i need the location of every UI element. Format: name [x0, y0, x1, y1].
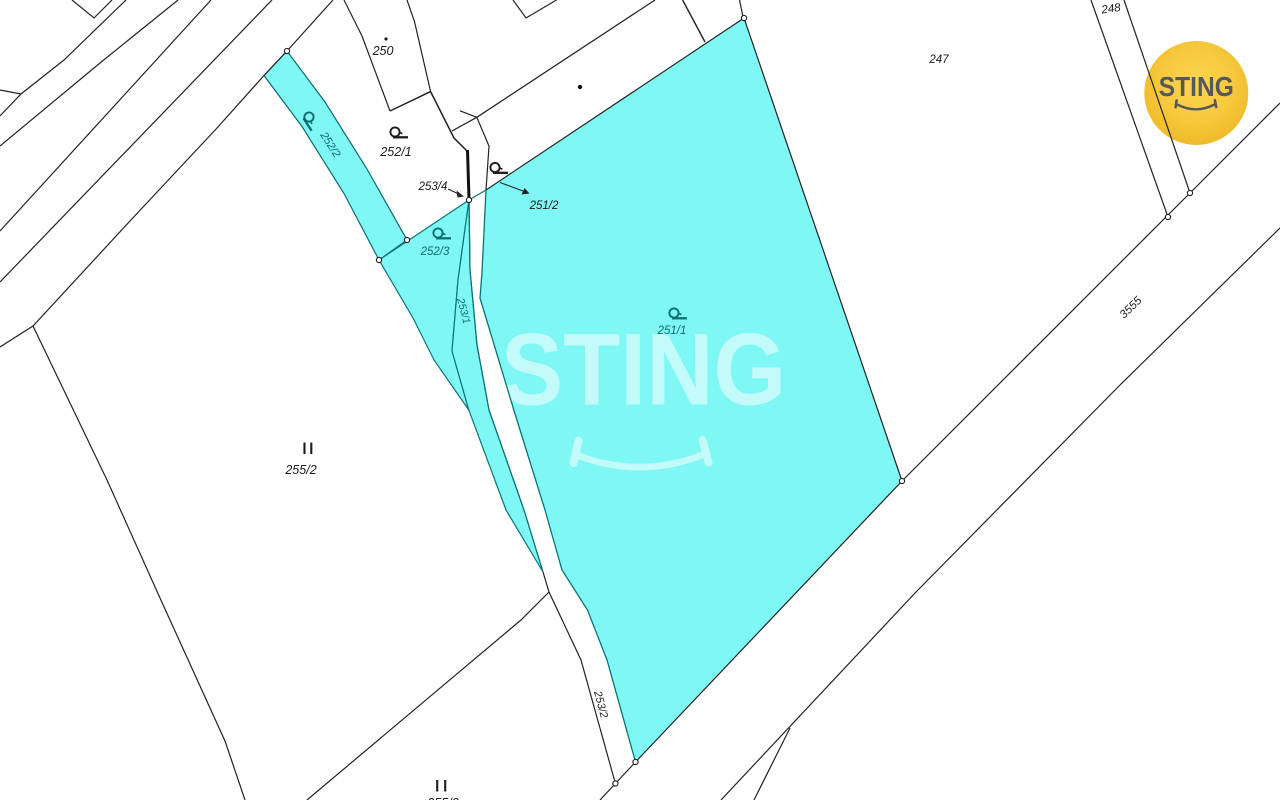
- svg-text:251/2: 251/2: [529, 200, 559, 212]
- svg-text:255/2: 255/2: [284, 463, 316, 477]
- svg-text:251/1: 251/1: [657, 325, 687, 337]
- svg-text:STING: STING: [501, 313, 786, 427]
- svg-text:252/1: 252/1: [379, 145, 411, 159]
- svg-text:252/3: 252/3: [420, 246, 450, 258]
- svg-text:255/3: 255/3: [426, 796, 458, 800]
- svg-text:250: 250: [372, 44, 394, 58]
- svg-text:247: 247: [928, 54, 949, 66]
- svg-text:253/4: 253/4: [418, 181, 448, 193]
- svg-text:STING: STING: [1159, 71, 1234, 102]
